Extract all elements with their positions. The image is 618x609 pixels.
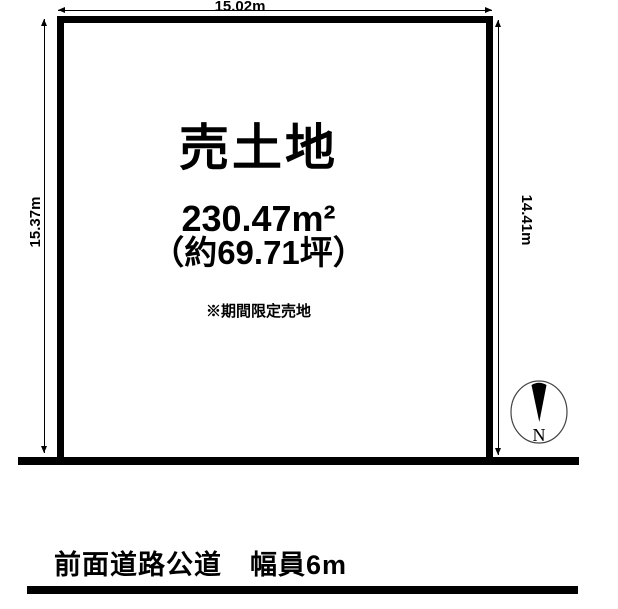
road-edge-line xyxy=(18,457,579,465)
dim-arrow-right-icon xyxy=(485,7,492,13)
plot-note: ※期間限定売地 xyxy=(57,303,460,321)
north-label: N xyxy=(533,425,546,445)
dimension-label-right: 14.41m xyxy=(517,190,533,250)
dimension-line-left xyxy=(44,19,45,453)
north-needle-icon xyxy=(532,383,547,422)
dimension-label-left: 15.37m xyxy=(29,192,45,252)
land-plot-diagram: 15.02m 15.37m 14.41m 14.92m 売土地 230.47m²… xyxy=(0,0,618,609)
dimension-label-top: 15.02m xyxy=(200,0,280,14)
compass-icon: N xyxy=(509,379,569,445)
dimension-line-top xyxy=(58,10,492,11)
dim-arrow-up-icon xyxy=(495,20,501,27)
road-label: 前面道路公道 幅員6m xyxy=(54,550,347,580)
dim-arrow-down-icon xyxy=(41,446,47,453)
north-compass: N xyxy=(509,379,569,445)
plot-area-tsubo: （約69.71坪） xyxy=(57,235,460,271)
dim-arrow-down-icon xyxy=(495,448,501,455)
plot-area-m2: 230.47m² xyxy=(57,200,460,238)
dim-arrow-up-icon xyxy=(41,19,47,26)
dim-arrow-left-icon xyxy=(58,7,65,13)
dimension-line-right xyxy=(498,20,499,455)
road-far-edge-line xyxy=(27,586,578,594)
plot-title: 売土地 xyxy=(57,122,460,174)
plot-text-block: 売土地 230.47m² （約69.71坪） ※期間限定売地 xyxy=(57,16,460,457)
